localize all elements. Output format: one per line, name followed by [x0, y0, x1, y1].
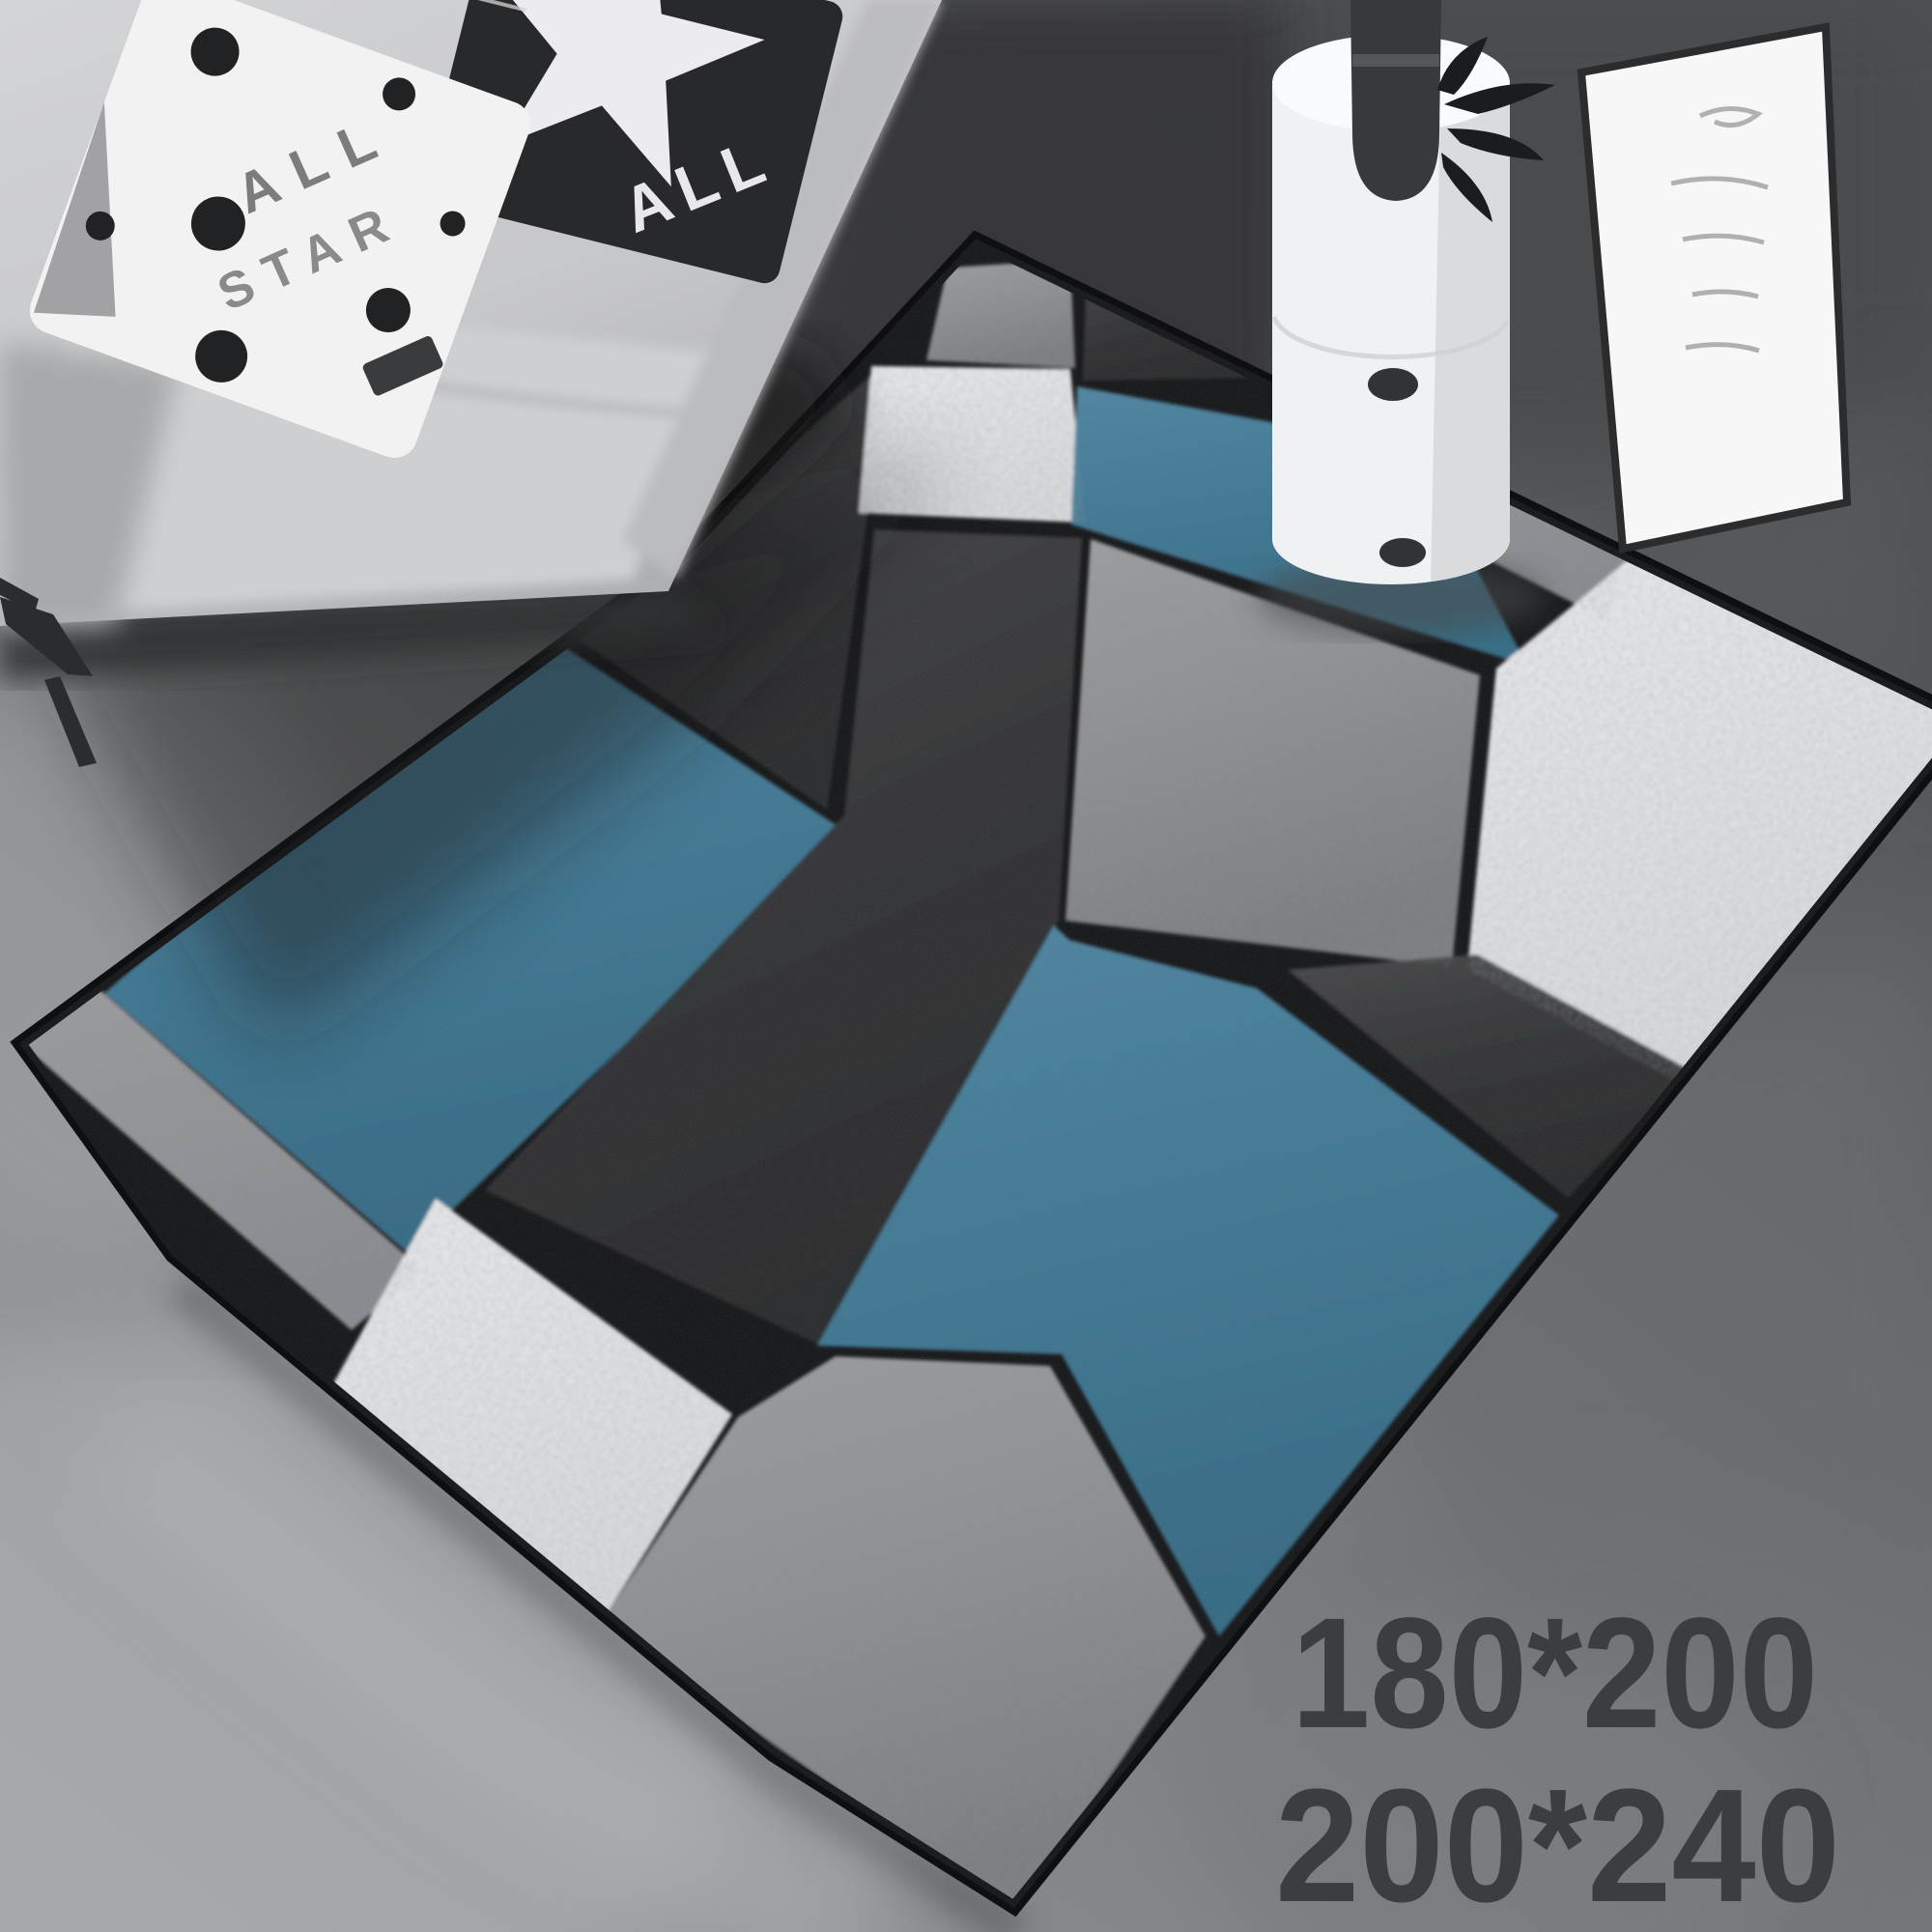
svg-text:200*240: 200*240 [1275, 1756, 1840, 1932]
svg-text:180*200: 180*200 [1292, 1584, 1818, 1761]
